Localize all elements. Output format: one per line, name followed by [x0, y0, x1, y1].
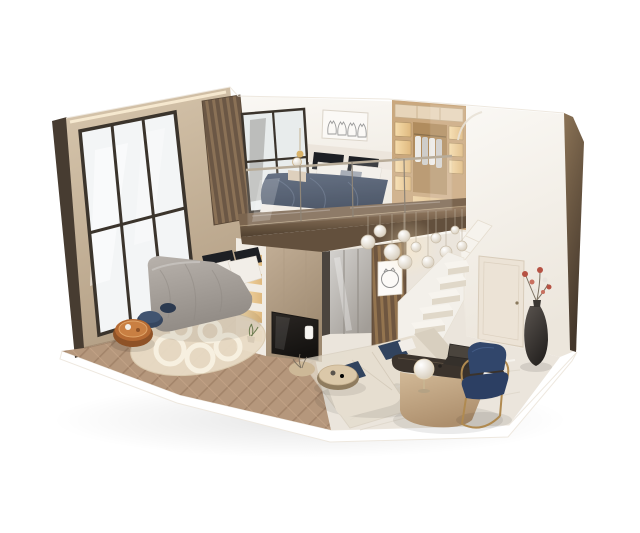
- amber-table-tray: [119, 321, 147, 337]
- desk-lamp-globe: [414, 359, 434, 379]
- loft-pendant-lamp: [297, 151, 304, 158]
- render-canvas: [0, 0, 640, 533]
- loft-apartment-render: [0, 0, 640, 533]
- door: [478, 256, 524, 347]
- glass-bubble: [398, 230, 410, 242]
- glass-bubble: [431, 233, 441, 243]
- cat-artwork: [322, 110, 368, 141]
- glass-bubble: [398, 255, 412, 269]
- door-handle: [515, 301, 518, 304]
- glass-bubble: [457, 241, 467, 251]
- glass-bubble: [411, 242, 421, 252]
- pouf-small: [160, 303, 176, 313]
- glass-bubble: [374, 225, 386, 237]
- mirror-hallway: [322, 247, 372, 336]
- teacup: [125, 324, 131, 330]
- tray-item: [136, 328, 140, 332]
- glass-bubble: [384, 244, 400, 260]
- table-decor: [331, 371, 336, 376]
- glass-bubble: [451, 226, 459, 234]
- side-table-top: [289, 362, 315, 377]
- coffee-table-top: [319, 365, 357, 385]
- chair-backrest: [468, 342, 507, 374]
- desk-lamp-base: [418, 389, 430, 393]
- table-decor: [340, 374, 344, 378]
- desk-item: [438, 364, 442, 368]
- humidifier: [305, 326, 313, 339]
- mirror-door-frame: [322, 251, 330, 336]
- glass-bubble: [422, 256, 434, 268]
- tv-panel: [266, 242, 322, 362]
- glass-bubble: [361, 235, 375, 249]
- vase-neck: [533, 300, 541, 307]
